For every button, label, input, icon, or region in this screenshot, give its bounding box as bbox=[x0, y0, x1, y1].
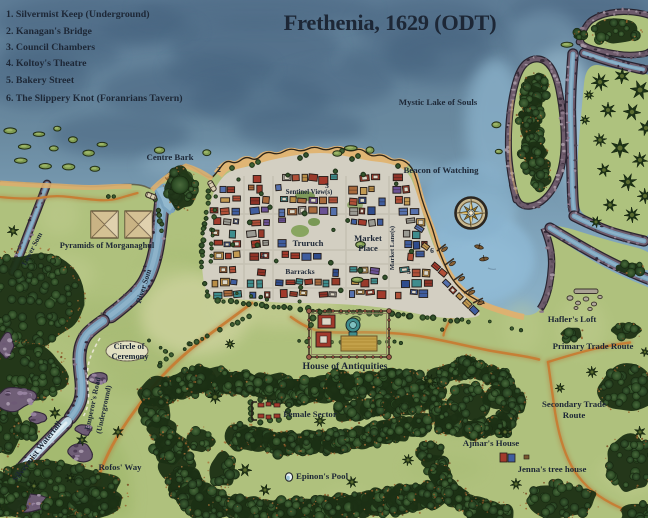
svg-text:2: 2 bbox=[217, 165, 221, 174]
svg-text:Jenna's tree house: Jenna's tree house bbox=[518, 464, 587, 474]
svg-text:Ceremony: Ceremony bbox=[111, 352, 149, 361]
svg-text:Circle of: Circle of bbox=[114, 342, 145, 351]
svg-text:Secondary Trade: Secondary Trade bbox=[542, 399, 606, 409]
svg-text:Ajmar's House: Ajmar's House bbox=[463, 438, 520, 448]
svg-text:Frethenia, 1629 (ODT): Frethenia, 1629 (ODT) bbox=[284, 10, 497, 35]
svg-text:2. Kanagan's Bridge: 2. Kanagan's Bridge bbox=[6, 26, 92, 37]
svg-text:Market: Market bbox=[354, 233, 382, 243]
svg-text:Primary Trade Route: Primary Trade Route bbox=[553, 341, 634, 351]
svg-text:Female Sector: Female Sector bbox=[283, 409, 337, 419]
svg-text:Mystic Lake of Souls: Mystic Lake of Souls bbox=[399, 97, 478, 107]
svg-text:Sentinel View(s): Sentinel View(s) bbox=[286, 189, 333, 196]
svg-text:4. Koltoy's Theatre: 4. Koltoy's Theatre bbox=[6, 58, 87, 69]
svg-text:6. The Slippery Knot (Foranria: 6. The Slippery Knot (Foranrians Tavern) bbox=[6, 93, 183, 104]
svg-text:Rofos' Way: Rofos' Way bbox=[98, 462, 142, 472]
svg-text:4: 4 bbox=[261, 251, 265, 260]
svg-text:3: 3 bbox=[325, 181, 329, 190]
svg-text:Centre Bark: Centre Bark bbox=[147, 152, 194, 162]
svg-text:1. Silvermist Keep (Undergroun: 1. Silvermist Keep (Underground) bbox=[6, 9, 150, 20]
svg-text:5. Bakery Street: 5. Bakery Street bbox=[6, 75, 75, 86]
svg-text:Beacon of Watching: Beacon of Watching bbox=[403, 165, 479, 175]
svg-text:Epinon's Pool: Epinon's Pool bbox=[296, 471, 349, 481]
svg-text:6: 6 bbox=[430, 246, 434, 255]
svg-text:1: 1 bbox=[78, 437, 82, 446]
svg-text:Pyramids of Morganaghul: Pyramids of Morganaghul bbox=[60, 241, 155, 250]
svg-text:Route: Route bbox=[563, 410, 586, 420]
svg-text:House of Antiquities: House of Antiquities bbox=[303, 361, 388, 372]
svg-text:Truruch: Truruch bbox=[293, 238, 324, 248]
svg-text:Hafler's Loft: Hafler's Loft bbox=[548, 314, 597, 324]
svg-text:3. Council Chambers: 3. Council Chambers bbox=[6, 42, 95, 53]
svg-text:5: 5 bbox=[407, 267, 411, 276]
svg-text:Market Lane(s): Market Lane(s) bbox=[389, 226, 396, 270]
svg-text:Place: Place bbox=[358, 243, 378, 253]
svg-text:Barracks: Barracks bbox=[285, 267, 314, 276]
